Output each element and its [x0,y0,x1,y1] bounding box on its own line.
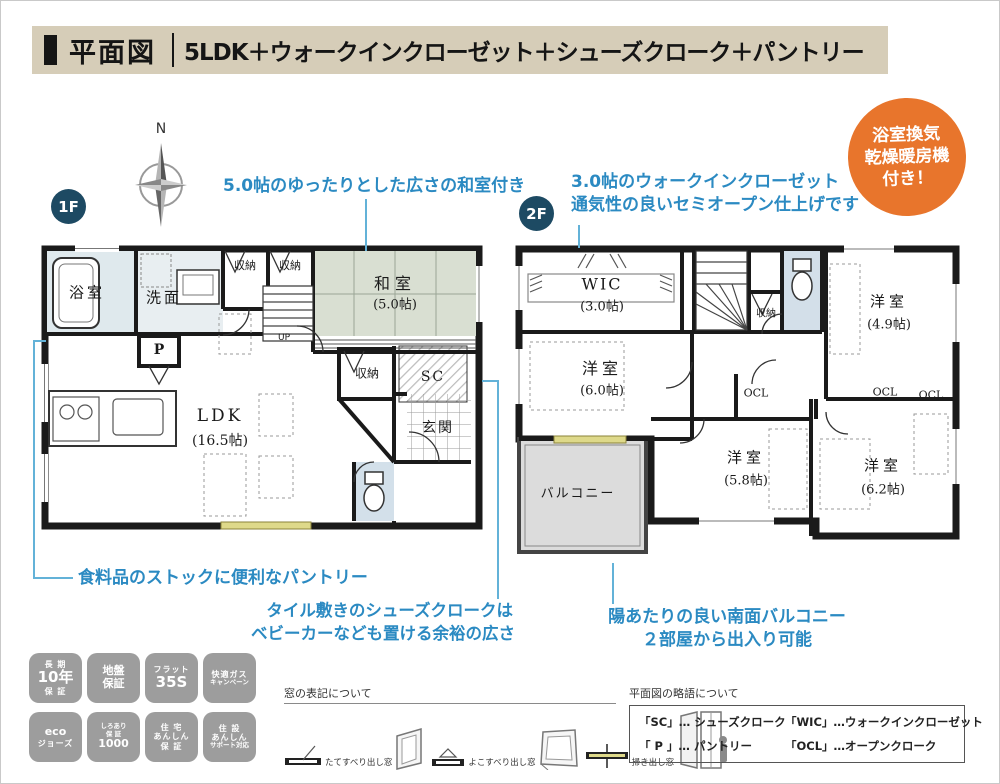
abbr-legend: 平面図の略語について 「SC」… シューズクローク 「WIC」…ウォークインクロ… [629,685,965,763]
room-label-washitsu: 和室 [374,270,416,294]
note-wic: 3.0帖のウォークインクローゼット 通気性の良いセミオープン仕上げです [571,171,859,217]
room-label-closet-2f: 収納 [756,305,776,320]
yoko-suberi-plan-icon [431,744,465,770]
room-label-wic: WIC [581,275,622,294]
layout-summary: 5LDK＋ウォークインクローゼット＋シューズクローク＋パントリー [184,33,864,67]
room-label-room49: 洋室 [870,291,908,312]
room-label-closet2: 収納 [279,257,301,273]
room-label-wic-size: (3.0帖) [580,296,624,315]
badge-eco-jozu: eco ジョーズ [29,712,82,762]
badge-10year-warranty: 長 期 10年 保 証 [29,653,82,703]
badge-jusetsu-support: 住 設 あんしん サポート対応 [203,712,256,762]
window-legend-title: 窓の表記について [284,685,616,701]
room-label-room60-size: (6.0帖) [580,380,624,399]
kitchen-icon [49,391,176,446]
room-label-room62-size: (6.2帖) [861,479,905,498]
room-label-balcony: バルコニー [541,483,616,502]
feature-badge: 浴室換気 乾燥暖房機 付き！ [846,96,968,218]
badge-housing-anshin: 住 宅 あんしん 保 証 [145,712,198,762]
badge-flat35s: フラット 35S [145,653,198,703]
room-label-ldk-size: (16.5帖) [192,430,248,450]
room-label-entrance: 玄関 [422,417,454,437]
stairs-up-label: UP [278,333,290,343]
header-divider [172,33,174,67]
room-label-closet1: 収納 [234,257,256,273]
room-label-wash: 洗面 [146,287,182,308]
room-label-ocl1: OCL [744,387,769,400]
room-label-room58: 洋室 [727,447,765,468]
abbr-p: 「 P 」… パントリー [639,738,785,754]
stairs-2f [696,251,747,330]
room-label-closet3: 収納 [355,365,379,382]
toilet-2f-icon [792,259,812,300]
abbr-ocl: 「OCL」…オープンクローク [785,738,936,754]
floorplan-1f [39,244,484,564]
room-label-bath: 浴室 [69,282,105,303]
room-label-ldk: LDK [197,406,244,426]
window-type-tate: たてすべり出し窓 [284,728,425,770]
header-bullet [44,35,57,65]
floor-2f-badge: 2F [519,196,554,231]
room-label-ocl2: OCL [873,386,898,399]
tate-suberi-plan-icon [284,740,322,770]
quality-badges: 長 期 10年 保 証 地盤 保証 フラット 35S 快適ガス キャンペーン e… [29,653,256,762]
floor-1f-badge: 1F [51,189,86,224]
hakidashi-plan-icon [585,742,629,770]
header-bar: 平面図 5LDK＋ウォークインクローゼット＋シューズクローク＋パントリー [32,26,888,74]
note-shoe-cloak: タイル敷きのシューズクロークは ベビーカーなども置ける余裕の広さ [251,599,513,645]
abbr-sc: 「SC」… シューズクローク [639,714,785,730]
window-legend: 窓の表記について たてすべり出し窓 よこすべり出し窓 [284,685,616,770]
page-title: 平面図 [69,31,156,70]
tate-suberi-window-icon [395,728,425,770]
room-label-room60: 洋室 [582,355,622,379]
abbr-wic: 「WIC」…ウォークインクローゼット [785,714,983,730]
abbr-legend-title: 平面図の略語について [629,685,965,701]
room-label-room58-size: (5.8帖) [724,470,768,489]
badge-shiroari-1000: しろあり 保 証 1000 [87,712,140,762]
compass-rose-icon [129,137,193,233]
note-pantry: 食料品のストックに便利なパントリー [78,567,368,590]
room-label-ocl3: OCL [919,389,944,402]
abbr-legend-box: 「SC」… シューズクローク 「WIC」…ウォークインクローゼット 「 P 」…… [629,705,965,763]
room-label-washitsu-size: (5.0帖) [373,294,417,313]
balcony-door-yellow-strip [554,436,626,443]
yoko-suberi-window-icon [539,728,579,770]
compass-north-label: N [129,121,193,137]
window-yellow-strip [221,522,311,529]
note-washitsu: 5.0帖のゆったりとした広さの和室付き [223,175,525,198]
room-label-room49-size: (4.9帖) [867,314,911,333]
note-balcony: 陽あたりの良い南面バルコニー ２部屋から出入り可能 [589,606,865,652]
compass: N [129,121,193,233]
room-label-sc: SC [421,369,445,385]
toilet-1f-icon [364,472,384,511]
flyer-page: 平面図 5LDK＋ウォークインクローゼット＋シューズクローク＋パントリー 浴室換… [0,0,1000,784]
room-label-room62: 洋室 [864,455,902,476]
badge-ground-warranty: 地盤 保証 [87,653,140,703]
window-type-yoko: よこすべり出し窓 [431,728,578,770]
badge-gas-campaign: 快適ガス キャンペーン [203,653,256,703]
room-label-pantry: P [154,342,165,358]
